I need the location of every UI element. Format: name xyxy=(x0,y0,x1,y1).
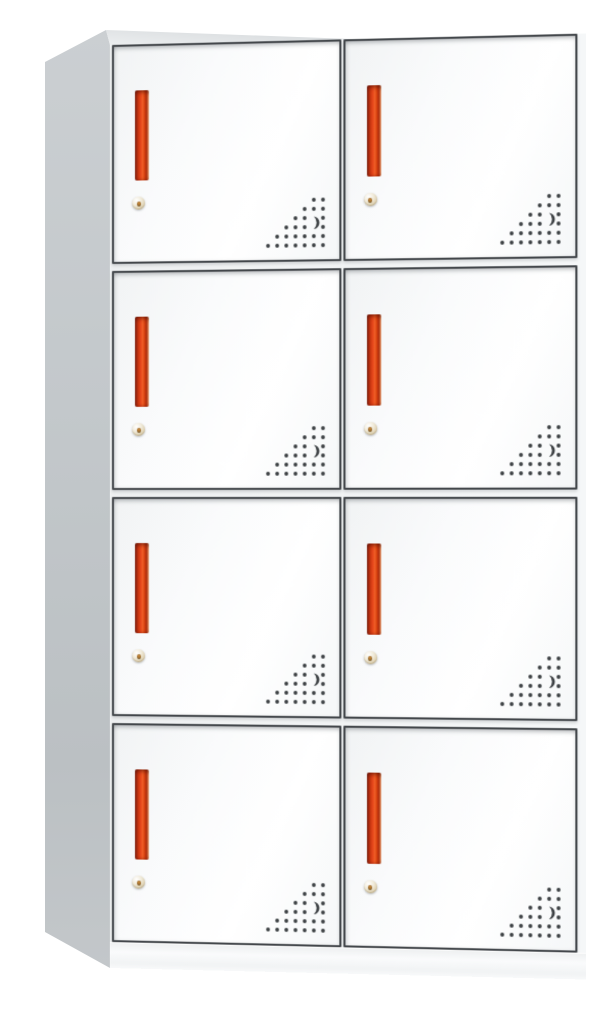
door-handle xyxy=(366,314,380,405)
locker-door xyxy=(112,268,341,490)
locker-door xyxy=(343,265,577,490)
vent-crescent-icon xyxy=(313,445,319,458)
keyhole-lock xyxy=(132,423,145,436)
locker-door xyxy=(343,726,577,953)
keyhole-lock xyxy=(363,422,376,435)
locker-door xyxy=(112,39,341,264)
keyhole-lock xyxy=(363,651,376,664)
door-handle xyxy=(135,317,149,407)
vent-crescent-icon xyxy=(549,213,555,226)
keyhole-lock xyxy=(132,875,145,888)
vent-holes-icon xyxy=(263,880,326,936)
vent-holes-icon xyxy=(498,654,563,710)
vent-crescent-icon xyxy=(313,216,319,229)
vent-holes-icon xyxy=(263,196,326,251)
door-handle xyxy=(135,769,149,859)
product-photo xyxy=(0,0,605,1009)
vent-crescent-icon xyxy=(313,902,319,915)
cabinet-front-panel xyxy=(110,33,586,979)
keyhole-lock xyxy=(363,193,376,206)
keyhole-lock xyxy=(132,649,145,662)
vent-holes-icon xyxy=(498,192,563,248)
vent-crescent-icon xyxy=(549,907,555,920)
door-handle xyxy=(366,543,380,634)
vent-holes-icon xyxy=(263,424,326,479)
locker-door xyxy=(112,723,341,947)
cabinet-side-panel xyxy=(45,30,110,968)
vent-crescent-icon xyxy=(549,444,555,457)
locker-door xyxy=(343,34,577,261)
keyhole-lock xyxy=(132,196,145,209)
vent-crescent-icon xyxy=(549,675,555,688)
vent-holes-icon xyxy=(498,423,563,478)
vent-holes-icon xyxy=(263,652,326,707)
vent-holes-icon xyxy=(498,885,563,942)
door-handle xyxy=(366,773,380,864)
door-grid xyxy=(112,34,577,953)
door-handle xyxy=(366,85,380,177)
door-handle xyxy=(135,543,149,633)
locker-door xyxy=(112,497,341,719)
locker-door xyxy=(343,497,577,721)
door-handle xyxy=(135,90,149,180)
vent-crescent-icon xyxy=(313,673,319,686)
keyhole-lock xyxy=(363,880,376,893)
